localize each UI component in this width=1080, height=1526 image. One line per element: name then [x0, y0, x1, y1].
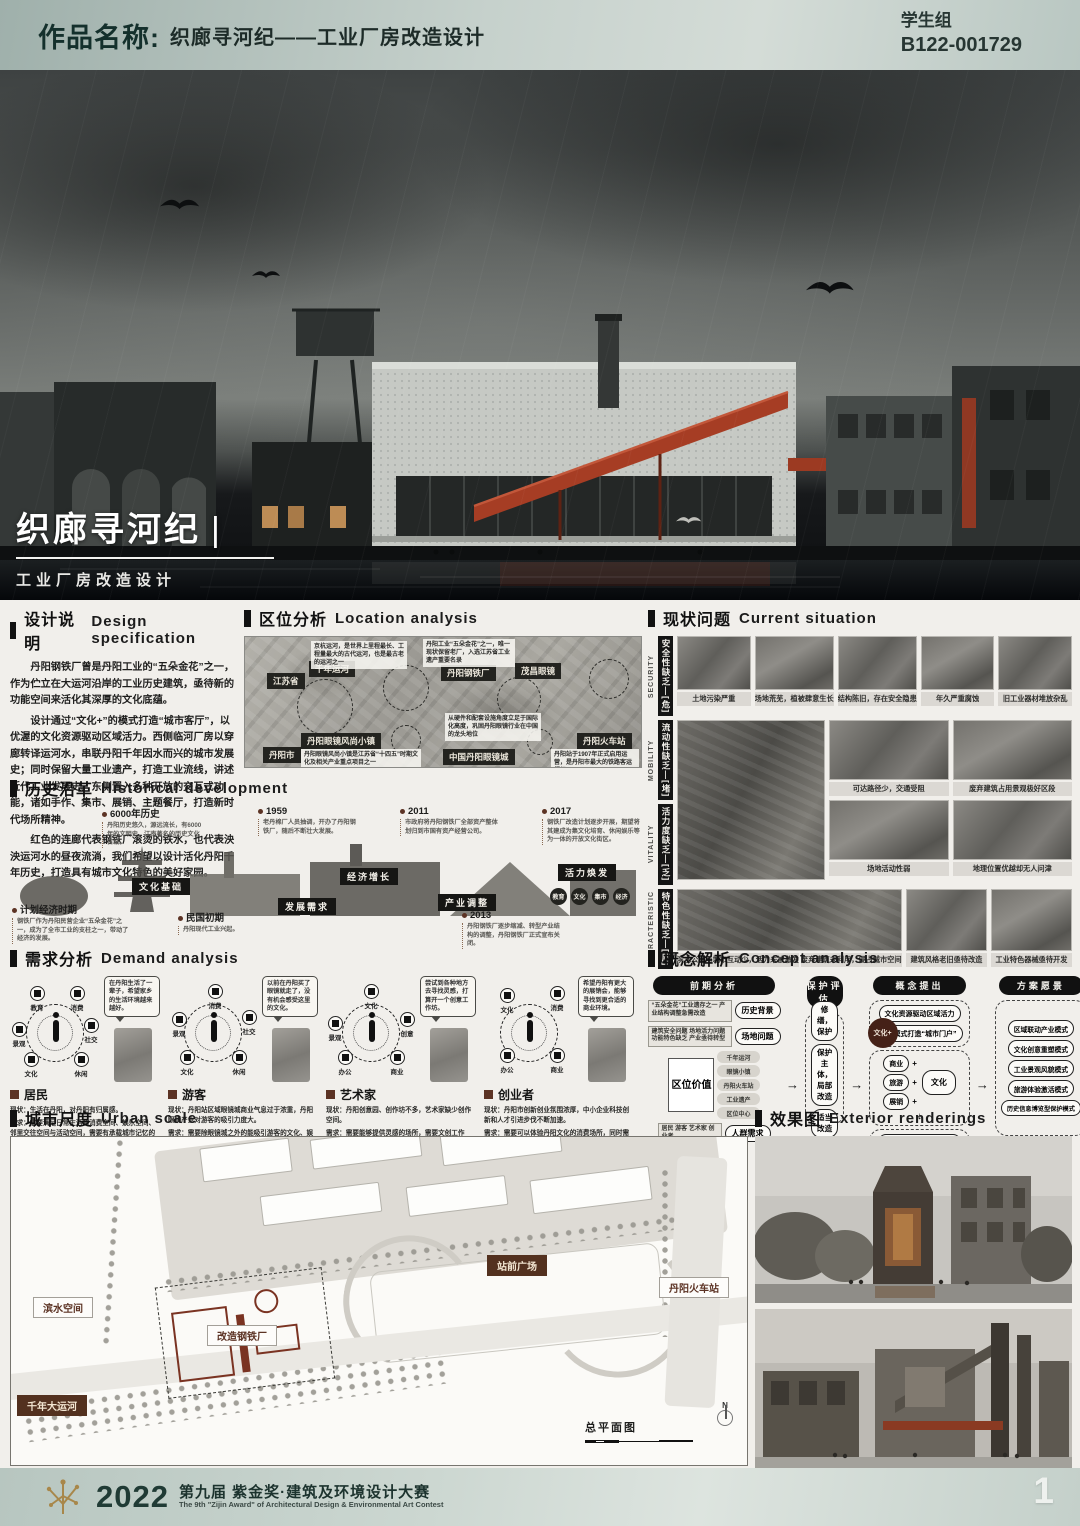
needs-diagram: 文化 消费 办公 商业: [484, 988, 576, 1080]
section-marker: [648, 950, 655, 967]
needs-diagram: 消费 景观 社交 文化 休闲: [168, 988, 260, 1080]
persona-name-row: 创业者: [484, 1086, 634, 1103]
event-year: 1959: [258, 806, 358, 817]
person-icon: [527, 1020, 533, 1042]
section-title-en: Location analysis: [335, 610, 478, 627]
site-photo: [829, 800, 949, 860]
section-marker: [244, 610, 251, 627]
event-note: 钢铁厂作为丹阳民营企业“五朵金花”之一，成为了全市工业的支柱之一，带动了经济的发…: [12, 918, 130, 944]
persona-name-row: 游客: [168, 1086, 318, 1103]
phase-tag: 产业调整: [438, 894, 496, 911]
chip: 文化: [571, 888, 588, 905]
section-title-zh: 效果图: [770, 1106, 821, 1130]
col-header: 前期分析: [653, 976, 774, 995]
hero-title: 织廊寻河纪|: [16, 502, 274, 551]
need-node: 文化: [172, 1050, 202, 1076]
history-timeline: 6000年历史 丹阳历史悠久，源远流长，有6000年的文明史，江南著名的历史文化…: [10, 806, 642, 944]
speech-bubble: 希望丹阳有更大的展销会，能够寻找到更合适的商业环境。: [578, 976, 634, 1017]
flow-arrow-icon: →: [976, 1077, 989, 1092]
phase-tag: 文化基础: [132, 878, 190, 895]
timeline-event: 2013 丹阳钢铁厂逐步缩减、转型产业结构的调整，丹阳钢铁厂正式宣布关闭。: [462, 910, 562, 949]
map-tag: 茂昌眼镜: [515, 663, 561, 679]
site-photo: [998, 636, 1072, 690]
person-icon: [53, 1020, 59, 1042]
poster-page: 作品名称: 织廊寻河纪——工业厂房改造设计 学生组 B122-001729: [0, 0, 1080, 1526]
exterior-rendering-1: [755, 1136, 1072, 1303]
map-circle: [589, 659, 629, 699]
section-header-demand: 需求分析 Demand analysis: [10, 946, 642, 970]
event-note: 市政府将丹阳钢铁厂全部资产整体划归到市国有资产经营公司。: [400, 819, 500, 836]
event-note: 老丹棉厂人员抽调，开办了丹阳钢铁厂，随后不断壮大发展。: [258, 819, 358, 836]
site-photo: [991, 889, 1072, 951]
timeline-event: 6000年历史 丹阳历史悠久，源远流长，有6000年的文明史，江南著名的历史文化…: [102, 806, 202, 848]
analysis-pill: 历史背景: [735, 1002, 781, 1019]
timeline-event: 计划经济时期 钢铁厂作为丹阳民营企业“五朵金花”之一，成为了全市工业的支柱之一，…: [12, 902, 130, 944]
plan-label-grand-canal: 千年大运河: [17, 1395, 87, 1416]
need-node: 办公: [492, 1048, 522, 1074]
row-label-en: VITALITY: [648, 804, 658, 884]
site-plan: 滨水空间 站前广场 丹阳火车站 改造钢铁厂 千年大运河 总平面图 N: [10, 1136, 748, 1466]
persona-photo: [272, 1028, 310, 1082]
need-icon: [172, 1012, 187, 1027]
need-icon: [390, 1050, 405, 1065]
need-icon: [550, 1048, 565, 1063]
aerial-photo: [677, 720, 825, 880]
photo-caption: 地理位置优越却无人问津: [953, 862, 1073, 876]
footer-contest: 第九届 紫金奖·建筑及环境设计大赛 The 9th "Zijin Award" …: [179, 1484, 444, 1510]
site-photo: [921, 636, 995, 690]
exterior-rendering-2: [755, 1309, 1072, 1476]
need-icon: [208, 984, 223, 999]
speech-bubble: 尝试到各种地方去寻找灵感，打算开一个创意工作坊。: [420, 976, 476, 1017]
event-note: 丹阳现代工业兴起。: [178, 926, 278, 935]
col-header: 概念提出: [873, 976, 966, 995]
culture-plus-badge: 文化+: [868, 1018, 898, 1048]
section-title-zh: 设计说明: [24, 606, 83, 654]
aerial-photo: [677, 889, 902, 951]
section-marker: [755, 1110, 762, 1127]
map-note: 京杭运河，是世界上里程最长、工程量最大的古代运河，也是最古老的运河之一: [311, 641, 407, 669]
plan-label-waterfront: 滨水空间: [33, 1297, 93, 1318]
scale-bar: [585, 1440, 693, 1444]
photo-caption: 土地污染严重: [677, 692, 751, 706]
row-label-mobility: MOBILITY 流动性缺乏—[堵]: [648, 720, 673, 800]
master-plan-label: 总平面图: [585, 1419, 693, 1435]
person-icon: [369, 1020, 375, 1042]
photo-caption: 结构陈旧，存在安全隐患: [838, 692, 917, 706]
timeline-event: 2011 市政府将丹阳钢铁厂全部资产整体划归到市国有资产经营公司。: [400, 806, 500, 836]
timeline-event: 1959 老丹棉厂人员抽调，开办了丹阳钢铁厂，随后不断壮大发展。: [258, 806, 358, 836]
photo-caption: 场地荒芜，植被肆意生长: [755, 692, 834, 706]
site-photo: [838, 636, 917, 690]
section-location: 区位分析 Location analysis 江苏省 千年运河 丹阳钢铁厂 茂昌…: [244, 606, 642, 768]
analysis-text: 建筑安全问题 场地活力问题 功能特色缺乏 产业亟待转型: [648, 1026, 732, 1048]
section-header-renderings: 效果图 Exterior renderings: [755, 1106, 1072, 1130]
row-label-zh: 安全性缺乏—[危]: [658, 636, 673, 716]
need-icon: [74, 1052, 89, 1067]
need-icon: [180, 1050, 195, 1065]
photo-cell: 废弃建筑占用景观极好区段: [953, 720, 1073, 796]
bullet-icon: [10, 1090, 19, 1099]
hero-title-block: 织廊寻河纪| 工业厂房改造设计: [16, 502, 274, 590]
need-icon: [550, 986, 565, 1001]
section-title-en: Current situation: [739, 610, 877, 627]
event-year: 2011: [400, 806, 500, 817]
north-arrow: N: [715, 1401, 735, 1431]
event-year: 2017: [542, 806, 642, 817]
section-header-current: 现状问题 Current situation: [648, 606, 1072, 630]
section-history: 历史沿革 Historical development 6000年历史 丹阳历史…: [10, 776, 642, 944]
need-node: 消费: [62, 986, 92, 1012]
needs-diagram: 教育 消费 景观 社交 文化 休闲: [10, 988, 102, 1080]
entry-group: 学生组: [901, 10, 1022, 32]
hero-rendering: 织廊寻河纪| 工业厂房改造设计: [0, 70, 1080, 600]
need-node: 景观: [164, 1012, 194, 1038]
site-photo: [829, 720, 949, 780]
analysis-pill: 场地问题: [735, 1028, 781, 1045]
site-photo: [953, 720, 1073, 780]
section-title-en: Demand analysis: [101, 950, 239, 967]
photo-cell: 结构陈旧，存在安全隐患: [838, 636, 917, 716]
photo-cell: 年久严重腐蚀: [921, 636, 995, 716]
need-icon: [500, 988, 515, 1003]
row-label-en: MOBILITY: [648, 720, 658, 800]
persona-photo: [588, 1028, 626, 1082]
need-node: 景观: [320, 1016, 350, 1042]
photo-cell: 土地污染严重: [677, 636, 751, 716]
need-node: 办公: [330, 1050, 360, 1076]
analysis-text: “五朵金花”工业遗存之一 产业结构调整急需改造: [648, 1000, 732, 1022]
need-icon: [70, 986, 85, 1001]
vitality-chips: 教育 文化 集市 经济: [550, 888, 630, 905]
need-node: 社交: [76, 1018, 106, 1044]
photo-cell: 场地活动性弱: [829, 800, 949, 876]
need-node: 文化: [16, 1052, 46, 1078]
section-marker: [10, 780, 17, 797]
analysis-group: 建筑安全问题 场地活力问题 功能特色缺乏 产业亟待转型 场地问题: [648, 1026, 781, 1048]
rendering-illustration: [755, 1136, 1072, 1303]
chip: 经济: [613, 888, 630, 905]
photo-caption: 场地活动性弱: [829, 862, 949, 876]
section-header-urban: 城市尺度 Urban scale: [10, 1106, 748, 1130]
section-title-zh: 需求分析: [25, 946, 93, 970]
need-node: 商业: [542, 1048, 572, 1074]
site-photo: [906, 889, 987, 951]
section-title-en: Historical development: [101, 780, 288, 797]
section-marker: [10, 950, 17, 967]
persona-name-row: 艺术家: [326, 1086, 476, 1103]
entry-info: 学生组 B122-001729: [901, 10, 1022, 58]
need-icon: [232, 1050, 247, 1065]
row-label-security: SECURITY 安全性缺乏—[危]: [648, 636, 673, 716]
design-spec-paragraph: 丹阳钢铁厂曾是丹阳工业的“五朵金花”之一，作为伫立在大运河沿岸的工业历史建筑，亟…: [10, 660, 236, 710]
map-tag: 丹阳火车站: [577, 733, 632, 749]
entry-code: B122-001729: [901, 32, 1022, 58]
chip: 集市: [592, 888, 609, 905]
row-label-en: SECURITY: [648, 636, 658, 716]
needs-diagram: 文化 景观 创意 办公 商业: [326, 988, 418, 1080]
need-icon: [30, 986, 45, 1001]
section-marker: [10, 1110, 17, 1127]
map-note: 丹阳眼镜风尚小镇是江苏省“十四五”时期文化及相关产业重点项目之一: [301, 749, 421, 768]
map-tag: 丹阳钢铁厂: [441, 665, 496, 681]
plan-label-station-plaza: 站前广场: [487, 1255, 547, 1276]
timeline-event: 2017 钢铁厂改造计划逐步开展，期望将其建成为集文化培育、休闲娱乐等为一体的开…: [542, 806, 642, 845]
need-node: 教育: [22, 986, 52, 1012]
site-photo: [755, 636, 834, 690]
section-current-situation: 现状问题 Current situation SECURITY 安全性缺乏—[危…: [648, 606, 1072, 973]
plan-label-railway-station: 丹阳火车站: [659, 1277, 729, 1298]
analysis-group: “五朵金花”工业遗存之一 产业结构调整急需改造 历史背景: [648, 1000, 781, 1022]
need-node: 文化: [492, 988, 522, 1014]
section-title-zh: 概念解析: [663, 946, 731, 970]
need-icon: [242, 1010, 257, 1025]
rendering-illustration: [755, 1309, 1072, 1476]
photo-cell: 场地荒芜，植被肆意生长: [755, 636, 834, 716]
need-icon: [328, 1016, 343, 1031]
bullet-icon: [168, 1090, 177, 1099]
need-node: 景观: [4, 1022, 34, 1048]
map-circle: [383, 665, 429, 711]
need-icon: [84, 1018, 99, 1033]
proposal-gateway: 文化+ 模式打造“城市门户”: [877, 1025, 963, 1042]
need-node: 消费: [542, 986, 572, 1012]
section-renderings: 效果图 Exterior renderings: [755, 1106, 1072, 1482]
culture-core: 文化: [922, 1070, 956, 1095]
phase-tag: 经济增长: [340, 868, 398, 885]
need-icon: [24, 1052, 39, 1067]
photo-caption: 旧工业器材堆放杂乱: [998, 692, 1072, 706]
page-number: 1: [1033, 1470, 1054, 1512]
photo-cell: 可达路径少，交通受阻: [829, 720, 949, 796]
map-circle: [297, 679, 353, 735]
speech-bubble: 以前在丹阳买了眼镜就走了，没有机会感受这里的文化。: [262, 976, 318, 1017]
zijin-award-logo-icon: [40, 1474, 86, 1520]
photo-cell: 旧工业器材堆放杂乱: [998, 636, 1072, 716]
section-header-location: 区位分析 Location analysis: [244, 606, 642, 630]
photo-caption: 年久严重腐蚀: [921, 692, 995, 706]
contest-title-en: The 9th "Zijin Award" of Architectural D…: [179, 1501, 444, 1510]
section-title-zh: 现状问题: [663, 606, 731, 630]
photo-cell: 地理位置优越却无人问津: [953, 800, 1073, 876]
event-note: 丹阳历史悠久，源远流长，有6000年的文明史，江南著名的历史文化古城。: [102, 822, 202, 848]
need-node: 休闲: [224, 1050, 254, 1076]
need-icon: [364, 984, 379, 999]
need-icon: [500, 1048, 515, 1063]
map-tag: 丹阳眼镜风尚小镇: [301, 733, 381, 749]
map-tag: 丹阳市: [263, 747, 301, 763]
persona-name-row: 居民: [10, 1086, 160, 1103]
map-note: 丹阳站于1907年正式启用运营，是丹阳市最大的铁路客运枢纽: [551, 749, 639, 768]
site-photo: [953, 800, 1073, 860]
bullet-icon: [484, 1090, 493, 1099]
hero-title-rule: [16, 557, 274, 559]
photo-caption: 可达路径少，交通受阻: [829, 782, 949, 796]
plan-label-renovated-steel-plant: 改造钢铁厂: [207, 1325, 277, 1346]
event-year: 计划经济时期: [12, 902, 130, 916]
phase-tag: 活力焕发: [558, 864, 616, 881]
section-title-en: Urban scale: [101, 1110, 197, 1127]
section-title-zh: 历史沿革: [25, 776, 93, 800]
event-year: 2013: [462, 910, 562, 921]
north-arrow-icon: [717, 1410, 733, 1426]
work-name-label: 作品名称:: [38, 16, 160, 55]
section-header-concept: 概念解析 Concept analysis: [648, 946, 1072, 970]
map-note: 丹阳工业“五朵金花”之一，唯一现状保留老厂，入选江苏省工业遗产重要名录: [423, 639, 515, 667]
person-icon: [211, 1020, 217, 1042]
col-header: 方案愿景: [999, 976, 1080, 995]
persona-photo: [114, 1028, 152, 1082]
tree-row: [100, 1137, 129, 1347]
bullet-icon: [326, 1090, 335, 1099]
row-label-vitality: VITALITY 活力度缺乏—[乏]: [648, 804, 673, 884]
section-title-en: Concept analysis: [739, 950, 878, 967]
need-node: 文化: [356, 984, 386, 1010]
phase-tag: 发展需求: [278, 898, 336, 915]
hero-subtitle: 工业厂房改造设计: [16, 569, 274, 590]
poster-header: 作品名称: 织廊寻河纪——工业厂房改造设计 学生组 B122-001729: [0, 0, 1080, 70]
contest-title-zh: 第九届 紫金奖·建筑及环境设计大赛: [179, 1484, 444, 1501]
flow-arrow-icon: →: [786, 1077, 799, 1092]
need-node: 消费: [200, 984, 230, 1010]
section-marker: [648, 610, 655, 627]
event-year: 民国初期: [178, 910, 278, 924]
footer-year: 2022: [96, 1479, 169, 1515]
chip: 教育: [550, 888, 567, 905]
row-label-zh: 流动性缺乏—[堵]: [658, 720, 673, 800]
need-node: 创意: [392, 1012, 422, 1038]
map-tag: 江苏省: [267, 673, 305, 689]
work-title: 织廊寻河纪——工业厂房改造设计: [170, 21, 485, 50]
need-icon: [338, 1050, 353, 1065]
need-node: 商业: [382, 1050, 412, 1076]
section-urban-scale: 城市尺度 Urban scale 滨水空间 站前: [10, 1106, 748, 1466]
flow-arrow-icon: →: [850, 1077, 863, 1092]
current-rows-mobility-vitality: MOBILITY 流动性缺乏—[堵] VITALITY 活力度缺乏—[乏] 可达…: [648, 720, 1072, 884]
location-map: 江苏省 千年运河 丹阳钢铁厂 茂昌眼镜 丹阳火车站 丹阳市 丹阳眼镜风尚小镇 中…: [244, 636, 642, 768]
need-node: 休闲: [66, 1052, 96, 1078]
section-title-en: Design specification: [91, 613, 236, 647]
current-row-security: SECURITY 安全性缺乏—[危] 土地污染严重 场地荒芜，植被肆意生长 结构…: [648, 636, 1072, 716]
speech-bubble: 在丹阳生活了一辈子，希望家乡的生活环境越来越好。: [104, 976, 160, 1017]
section-title-en: Exterior renderings: [829, 1110, 986, 1127]
section-title-zh: 区位分析: [259, 606, 327, 630]
map-tag: 中国丹阳眼镜城: [443, 749, 515, 765]
need-node: 社交: [234, 1010, 264, 1036]
need-icon: [12, 1022, 27, 1037]
proposal-top-box: 文化资源驱动区域活力 文化+ 模式打造“城市门户”: [869, 1000, 970, 1047]
timeline-event: 民国初期 丹阳现代工业兴起。: [178, 910, 278, 935]
poster-footer: 2022 第九届 紫金奖·建筑及环境设计大赛 The 9th "Zijin Aw…: [0, 1468, 1080, 1526]
map-note: 从硬件和配套设施角度立足于国际化高度，巩固丹阳眼镜行业在中国的龙头地位: [445, 713, 541, 741]
site-photo: [677, 636, 751, 690]
section-marker: [10, 622, 16, 639]
section-title-zh: 城市尺度: [25, 1106, 93, 1130]
event-note: 钢铁厂改造计划逐步开展，期望将其建成为集文化培育、休闲娱乐等为一体的开放文化街区…: [542, 819, 642, 845]
photo-caption: 废弃建筑占用景观极好区段: [953, 782, 1073, 796]
factory-plan-shape: [253, 1288, 280, 1315]
value-box: 区位价值: [668, 1058, 714, 1112]
plan-legend: 总平面图: [585, 1419, 693, 1444]
event-year: 6000年历史: [102, 806, 202, 820]
persona-photo: [430, 1028, 468, 1082]
section-header-design-spec: 设计说明 Design specification: [10, 606, 236, 654]
section-header-history: 历史沿革 Historical development: [10, 776, 642, 800]
row-label-zh: 活力度缺乏—[乏]: [658, 804, 673, 884]
need-icon: [400, 1012, 415, 1027]
